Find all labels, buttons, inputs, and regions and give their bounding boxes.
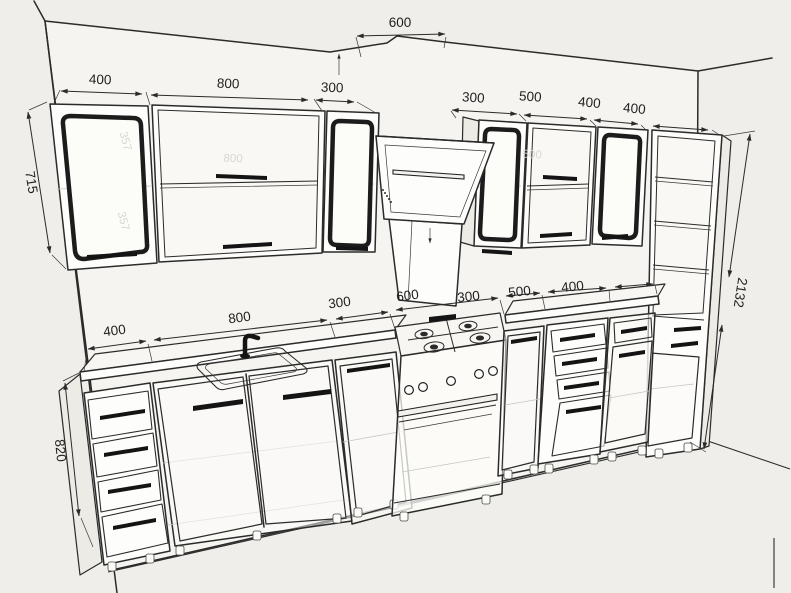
adjustable-foot bbox=[146, 554, 154, 563]
dim-label: 400 bbox=[102, 322, 126, 340]
dim-label: 300 bbox=[462, 89, 486, 106]
adjustable-foot bbox=[504, 470, 512, 479]
wall-cabinet-400-glass-right bbox=[592, 127, 648, 246]
adjustable-foot bbox=[608, 452, 616, 461]
dim-label: 400 bbox=[561, 278, 585, 295]
dim-label: 820 bbox=[52, 439, 69, 463]
adjustable-foot bbox=[545, 464, 553, 473]
adjustable-foot bbox=[638, 446, 646, 455]
stove-front bbox=[392, 340, 506, 516]
wall-cabinet-300-glass-left bbox=[323, 111, 379, 252]
adjustable-foot bbox=[684, 443, 692, 452]
dim-label: 400 bbox=[578, 94, 602, 111]
dim-label: 300 bbox=[321, 80, 344, 96]
dim-label: 300 bbox=[457, 288, 481, 305]
stove-600 bbox=[392, 313, 506, 521]
base-cabinet-400 bbox=[600, 313, 655, 461]
dim-label: 800 bbox=[227, 309, 251, 327]
kitchen-drawing-svg: 357 357 800 500 400 800 300 600 300 bbox=[0, 0, 791, 593]
adjustable-foot bbox=[333, 514, 341, 523]
dim-label: 400 bbox=[623, 100, 647, 117]
glass-door bbox=[330, 121, 372, 246]
glass-door bbox=[600, 135, 640, 238]
ceiling-corner-left bbox=[34, 1, 45, 21]
stove-foot bbox=[482, 495, 490, 504]
ceiling-corner-right bbox=[698, 58, 772, 71]
ghost-500: 500 bbox=[522, 149, 542, 162]
dim-label: 500 bbox=[508, 283, 532, 300]
kitchen-drawing-canvas: 357 357 800 500 400 800 300 600 300 bbox=[0, 0, 791, 593]
dim-label: 800 bbox=[217, 76, 240, 92]
ghost-800: 800 bbox=[223, 153, 243, 166]
adjustable-foot bbox=[530, 465, 538, 474]
adjustable-foot bbox=[253, 531, 261, 540]
stove-foot bbox=[400, 512, 408, 521]
dim-label: 300 bbox=[327, 294, 351, 312]
tall-lower-door bbox=[648, 353, 699, 446]
adjustable-foot bbox=[108, 562, 116, 571]
dim-label: 400 bbox=[89, 72, 112, 88]
adjustable-foot bbox=[354, 508, 362, 517]
dim-label: 600 bbox=[389, 15, 412, 30]
adjustable-foot bbox=[176, 546, 184, 555]
dim-label: 600 bbox=[395, 287, 419, 305]
wall-cabinet-800-flip bbox=[152, 105, 325, 262]
dim-label: 500 bbox=[519, 88, 543, 105]
base-cabinet-300-right bbox=[498, 326, 544, 479]
glass-door bbox=[63, 116, 147, 259]
wall-cabinet-500-flip bbox=[522, 123, 596, 248]
wall-cabinet-400-glass bbox=[50, 104, 157, 270]
door bbox=[502, 332, 540, 470]
floor-line-right bbox=[696, 437, 790, 469]
adjustable-foot bbox=[590, 455, 598, 464]
dim-label: 715 bbox=[22, 170, 40, 195]
dim-label: 2132 bbox=[731, 277, 751, 309]
sink-base-cabinet-800 bbox=[153, 360, 352, 555]
adjustable-foot bbox=[655, 449, 663, 458]
